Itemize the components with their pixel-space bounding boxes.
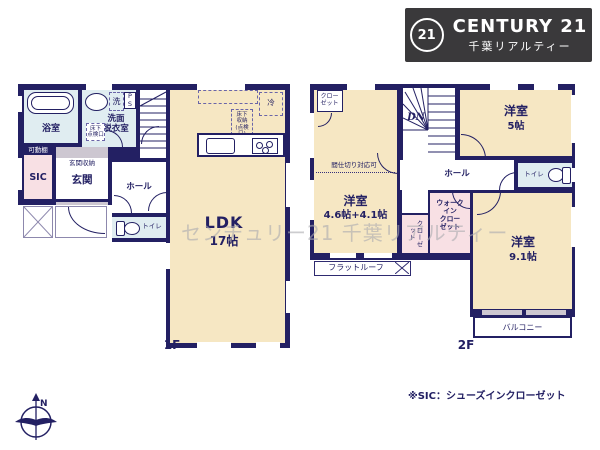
cross-mark	[24, 207, 52, 237]
kitchen-counter	[197, 133, 285, 157]
hall-passage	[402, 190, 428, 213]
brand-name: CENTURY 21	[453, 16, 588, 37]
compass-icon: N	[12, 390, 60, 444]
stairs-1f	[140, 90, 166, 158]
hatch-mark	[395, 262, 409, 274]
company-name: 千葉リアルティー	[468, 38, 571, 54]
toilet-icon-2f	[562, 167, 571, 184]
washer-box: 洗	[109, 92, 124, 111]
watermark: センチュリー21 千葉リアルティー	[181, 217, 508, 246]
window	[571, 207, 575, 247]
partition-dotted-line	[316, 172, 395, 174]
window	[286, 163, 290, 207]
floor-storage-box: 床下 収納 (点検口)	[231, 109, 253, 135]
outside-area	[112, 242, 166, 348]
room-toilet-2f: トイレ	[518, 163, 572, 187]
room-toilet-1f: トイレ	[112, 217, 166, 238]
entrance-label: 玄関	[56, 174, 108, 186]
fridge-box: 冷	[259, 92, 283, 116]
window	[310, 180, 314, 220]
closet-top: クロー ゼット	[317, 90, 343, 112]
stairs-treads	[403, 88, 455, 160]
c21-seal-icon: 21	[410, 18, 444, 52]
window	[18, 96, 22, 112]
bath-label: 浴室	[24, 124, 78, 135]
sink-icon	[85, 93, 108, 111]
window	[571, 168, 575, 182]
balcony: バルコニー	[473, 316, 572, 338]
window	[571, 95, 575, 143]
ps-duct-label: P S	[124, 92, 136, 109]
stairs-treads	[140, 90, 166, 158]
cupboard-box	[198, 90, 258, 104]
plan-2f: 間仕切り対応可 洋室 4.6帖+4.1帖 クロー ゼット	[310, 84, 575, 340]
porch-cross-box	[23, 206, 53, 238]
window	[166, 243, 170, 269]
room-sic: SIC	[24, 155, 52, 199]
window	[330, 253, 356, 258]
door-arc	[114, 195, 132, 213]
room-washroom: P S 洗 洗面 脱衣室 床下 点検口	[82, 90, 136, 147]
century21-logo: 21 CENTURY 21 千葉リアルティー	[405, 8, 592, 62]
floorplan-image: 21 CENTURY 21 千葉リアルティー 浴室 P S 洗 洗面 脱衣室 床…	[0, 0, 600, 450]
window	[197, 342, 231, 348]
sink-basin-icon	[206, 138, 235, 154]
entrance-storage-shelf	[56, 147, 108, 158]
window	[18, 158, 22, 190]
window	[490, 84, 518, 90]
movable-shelf-label: 可動棚	[24, 147, 52, 155]
dn-label: DN	[405, 112, 427, 124]
entrance-step	[56, 202, 108, 205]
room-entrance: 玄関収納 玄関	[56, 158, 108, 199]
entrance-door-arc	[68, 207, 105, 234]
stairs-2f: DN	[403, 88, 455, 160]
svg-text:N: N	[40, 399, 48, 409]
toilet-bowl-icon	[124, 222, 140, 235]
sic-note: ※SIC：シューズインクローゼット	[408, 391, 592, 403]
window	[286, 281, 290, 313]
window	[197, 84, 245, 90]
floor-label-2f: 2F	[452, 338, 480, 352]
window	[256, 342, 280, 348]
porch-door-box	[55, 206, 107, 238]
entrance-storage-label: 玄関収納	[56, 160, 108, 168]
window	[347, 84, 375, 90]
window	[482, 310, 522, 315]
window	[364, 253, 392, 258]
bathtub-icon	[27, 92, 74, 114]
window	[526, 310, 566, 315]
window	[86, 84, 112, 90]
logo-mark-number: 21	[418, 28, 436, 43]
floor-label-1f: 1F	[158, 338, 186, 352]
plan-1f: 浴室 P S 洗 洗面 脱衣室 床下 点検口	[18, 84, 290, 348]
window	[310, 113, 314, 158]
stove-icon	[252, 138, 278, 154]
inspection-hatch-box: 床下 点検口	[86, 123, 105, 141]
flatroof: フラットルーフ	[314, 261, 411, 276]
window	[534, 84, 558, 90]
room-bath: 浴室	[24, 90, 78, 143]
room-hall-2f: ホール	[400, 160, 514, 190]
